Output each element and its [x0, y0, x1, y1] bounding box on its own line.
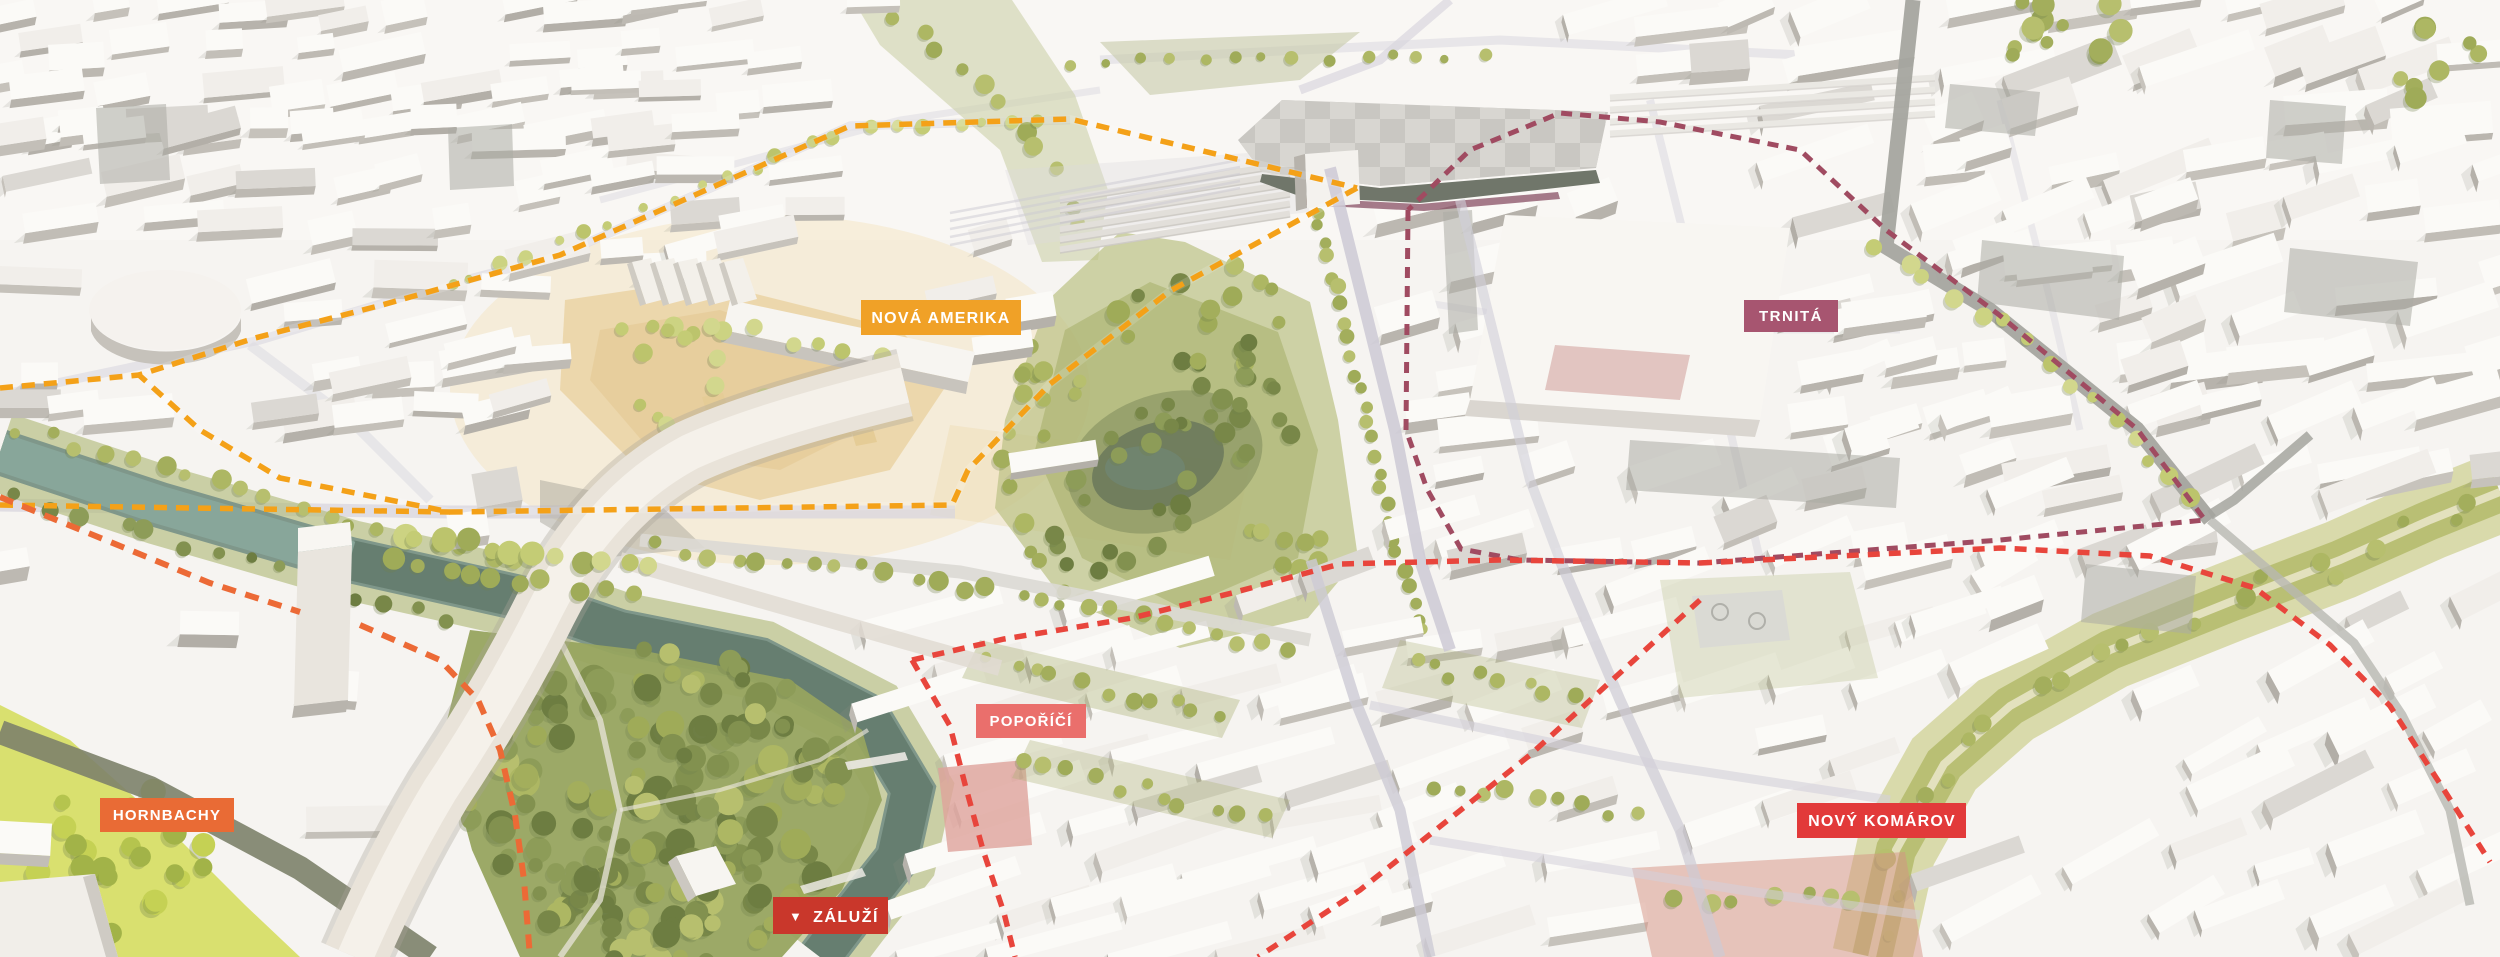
svg-text:NOVÝ KOMÁROV: NOVÝ KOMÁROV	[1808, 811, 1956, 830]
svg-text:NOVÁ AMERIKA: NOVÁ AMERIKA	[871, 308, 1010, 327]
svg-text:TRNITÁ: TRNITÁ	[1759, 308, 1823, 325]
svg-text:▼: ▼	[789, 909, 802, 924]
svg-text:POPOŘÍČÍ: POPOŘÍČÍ	[990, 712, 1073, 730]
svg-text:ZÁLUŽÍ: ZÁLUŽÍ	[813, 907, 879, 926]
svg-text:HORNBACHY: HORNBACHY	[113, 807, 221, 824]
